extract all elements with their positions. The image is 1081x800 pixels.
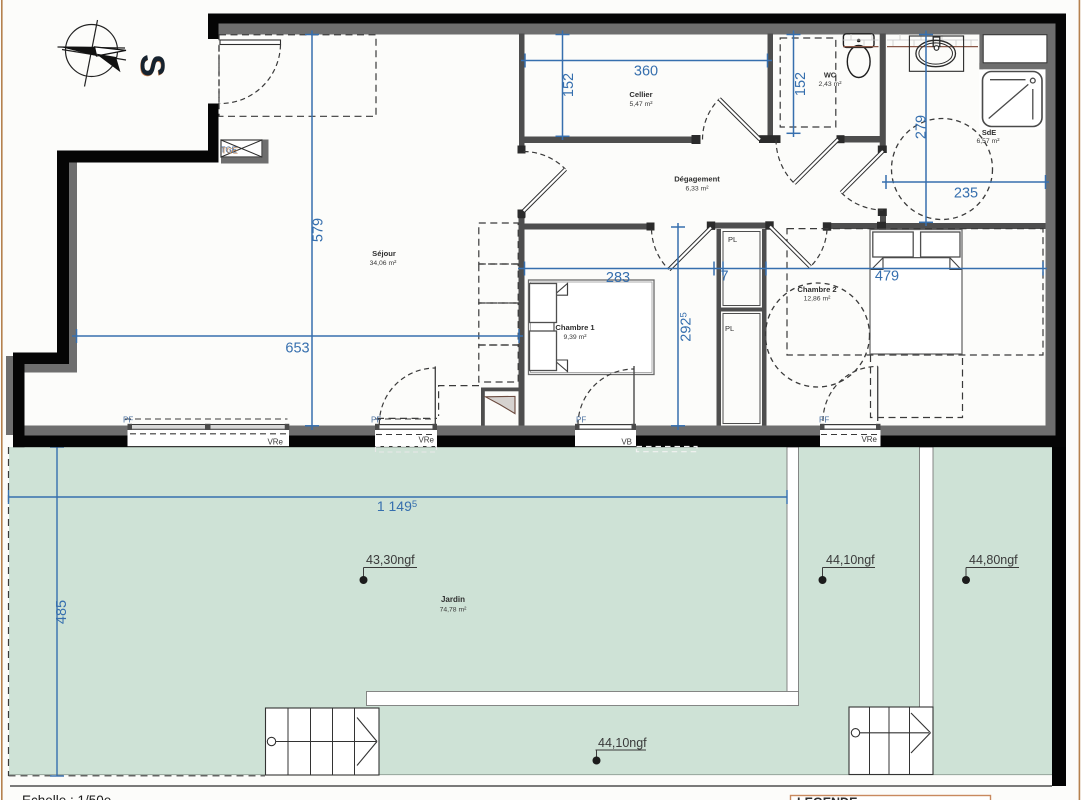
svg-text:PF: PF <box>371 416 381 425</box>
svg-text:6,33 m²: 6,33 m² <box>685 186 709 193</box>
svg-text:Séjour: Séjour <box>372 249 396 258</box>
svg-text:Dégagement: Dégagement <box>674 175 720 184</box>
svg-text:1 1495: 1 1495 <box>377 498 417 514</box>
svg-text:34,06 m²: 34,06 m² <box>370 260 398 267</box>
svg-text:7: 7 <box>720 269 728 285</box>
svg-text:579: 579 <box>311 218 327 242</box>
svg-text:VRe: VRe <box>418 436 434 445</box>
svg-text:VRe: VRe <box>861 435 877 444</box>
svg-text:235: 235 <box>954 186 978 202</box>
svg-text:VB: VB <box>621 438 632 447</box>
svg-text:12,86 m²: 12,86 m² <box>804 296 832 303</box>
svg-text:SdE: SdE <box>982 128 996 137</box>
svg-text:PF: PF <box>123 416 133 425</box>
svg-text:479: 479 <box>875 269 899 285</box>
svg-text:VRe: VRe <box>267 438 283 447</box>
svg-text:44,10ngf: 44,10ngf <box>598 736 647 750</box>
svg-text:152: 152 <box>561 73 577 97</box>
svg-text:44,10ngf: 44,10ngf <box>826 553 875 567</box>
svg-text:74,78 m²: 74,78 m² <box>440 607 468 614</box>
svg-text:44,80ngf: 44,80ngf <box>969 553 1018 567</box>
svg-text:WC: WC <box>824 71 837 80</box>
svg-text:653: 653 <box>285 341 309 357</box>
svg-text:Jardin: Jardin <box>441 595 465 604</box>
svg-text:Chambre 1: Chambre 1 <box>555 323 595 332</box>
svg-text:PF: PF <box>819 416 829 425</box>
svg-text:279: 279 <box>913 115 929 139</box>
svg-text:9,39 m²: 9,39 m² <box>563 334 587 341</box>
svg-text:TGE: TGE <box>221 146 237 155</box>
svg-text:6,57 m²: 6,57 m² <box>976 138 1000 145</box>
svg-text:Chambre 2: Chambre 2 <box>797 285 836 294</box>
svg-text:283: 283 <box>606 270 630 286</box>
svg-text:2,43 m²: 2,43 m² <box>818 81 842 88</box>
svg-text:PL: PL <box>728 235 737 244</box>
svg-text:360: 360 <box>634 64 658 80</box>
svg-text:485: 485 <box>54 600 70 624</box>
svg-text:152: 152 <box>793 72 809 96</box>
svg-text:PF: PF <box>576 416 586 425</box>
svg-text:LEGENDE: LEGENDE <box>797 796 857 800</box>
svg-text:5,47 m²: 5,47 m² <box>629 101 653 108</box>
svg-text:43,30ngf: 43,30ngf <box>366 553 415 567</box>
svg-text:Echelle : 1/50e: Echelle : 1/50e <box>22 793 111 800</box>
svg-text:Cellier: Cellier <box>629 90 652 99</box>
svg-text:PL: PL <box>725 324 734 333</box>
svg-text:S: S <box>133 54 171 77</box>
